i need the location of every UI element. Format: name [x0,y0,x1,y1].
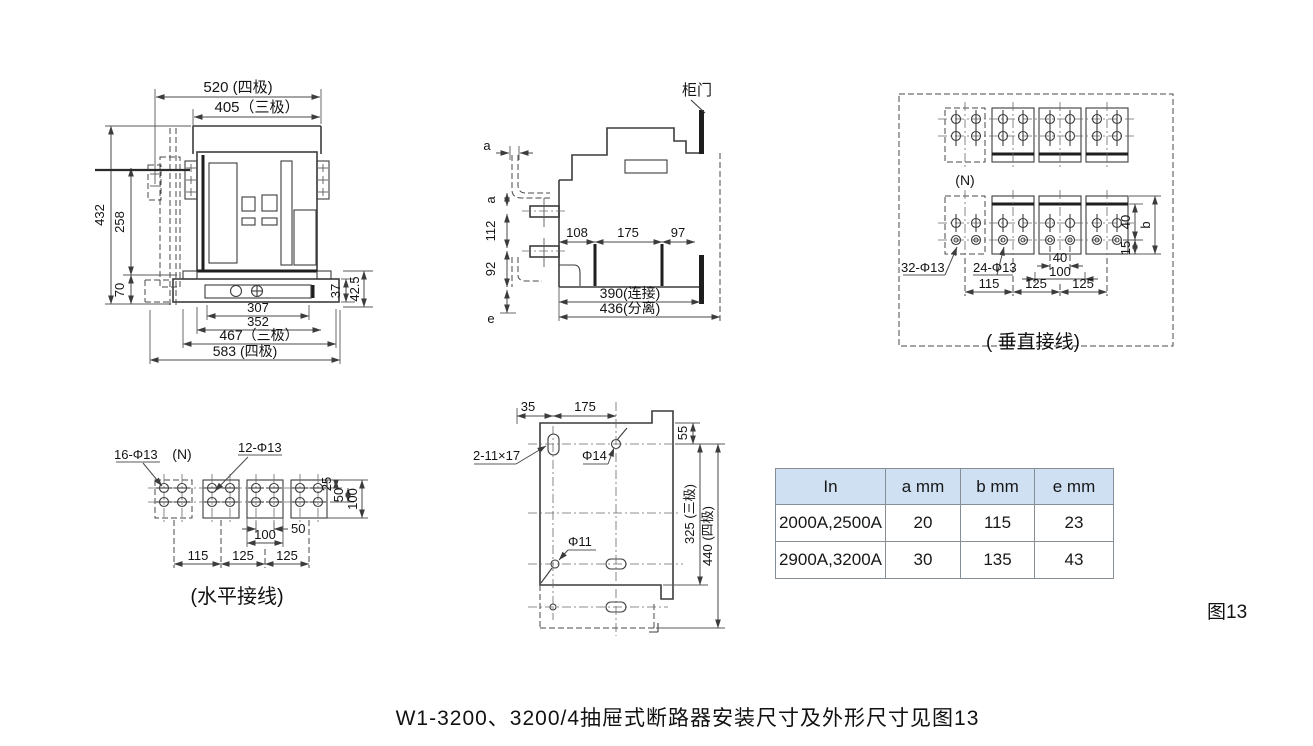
dim-125b-label: 125 [1072,276,1094,291]
dim-70-label: 70 [112,283,127,297]
cell-in-1: 2000A,2500A [776,505,886,542]
holes-12-label: 12-Φ13 [238,440,282,455]
horizontal-wiring-caption: (水平接线) [177,580,297,609]
dim-436-label: 436(分离) [600,300,661,316]
col-header-b: b mm [961,469,1035,505]
front-view-withdrawn-position [95,128,190,307]
dim-125a-label: 125 [1025,276,1047,291]
cabinet-door-label: 柜门 [682,82,712,99]
cabinet-door-panel-lower [699,255,704,304]
dim-405-label: 405（三极） [214,99,299,116]
neutral-pole-label: (N) [172,446,191,462]
front-view-body [173,126,339,302]
spec-table-row-2: 2900A,3200A 30 135 43 [776,542,1114,579]
vertical-terminals-bottom-row [938,190,1135,260]
mounting-plate-features [528,402,683,636]
spec-table: In a mm b mm e mm 2000A,2500A 20 115 23 … [775,468,1114,579]
dim-325-label: 325 (三极) [682,484,697,544]
dim-50-pitch-label: 50 [291,521,305,536]
vertical-wiring-caption: ( 垂直接线) [963,327,1103,354]
side-view-drawing: 柜门 a a 112 92 e 108 175 97 390(连接) 436(分… [462,80,754,352]
dim-100-label: 100 [1049,264,1071,279]
dim-15-label: 15 [1118,241,1133,255]
dim-108-label: 108 [566,225,588,240]
dim-583-label: 583 (四极) [213,343,278,359]
dim-55-label: 55 [675,426,690,440]
figure-caption: W1-3200、3200/4抽屉式断路器安装尺寸及外形尺寸见图13 [31,702,1313,732]
cell-e-2: 43 [1035,542,1114,579]
cabinet-door-panel-upper [699,110,704,154]
dim-467-label: 467（三极） [219,327,298,343]
dim-a-side-label: a [483,196,498,204]
rail-cross-marks [186,164,328,196]
col-header-in: In [776,469,886,505]
nameplate [625,160,667,173]
dim-125a-label: 125 [232,548,254,563]
dim-35-label: 35 [521,399,535,414]
dim-92-label: 92 [483,262,498,276]
dim-40-pitch-label: 40 [1053,250,1067,265]
front-view-drawing: 520 (四极) 405（三极） 432 258 70 37 42.5 307 … [93,64,387,404]
dim-175-label: 175 [617,225,639,240]
vertical-terminals-top-row [938,102,1135,168]
figure-number-label: 图13 [1207,597,1247,624]
spec-table-header-row: In a mm b mm e mm [776,469,1114,505]
dim-115-label: 115 [979,276,1000,291]
dim-37-label: 37 [328,284,343,298]
dim-97-label: 97 [671,225,685,240]
col-header-a: a mm [886,469,961,505]
dim-50-side-label: 50 [331,488,346,502]
lower-terminal [530,246,559,257]
dim-258-label: 258 [112,211,127,233]
cell-b-1: 115 [961,505,1035,542]
holes-16-label: 16-Φ13 [114,447,158,462]
horizontal-wiring-drawing: 16-Φ13 (N) 12-Φ13 25 50 100 50 100 115 1… [98,432,390,592]
vertical-wiring-drawing: (N) 32-Φ13 24-Φ13 40 100 115 125 125 40 … [893,88,1181,356]
dim-125b-label: 125 [276,548,298,563]
dim-307-label: 307 [247,300,269,315]
mounting-slot [548,434,559,455]
catalog-page: 520 (四极) 405（三极） 432 258 70 37 42.5 307 … [0,0,1313,746]
dim-112-label: 112 [483,221,498,242]
holes-32-label: 32-Φ13 [901,260,945,275]
holes-24-label: 24-Φ13 [973,260,1017,275]
col-header-e: e mm [1035,469,1114,505]
dim-440-label: 440 (四极) [700,506,715,566]
mounting-plate-drawing: 35 175 2-11×17 Φ14 Φ11 55 325 (三极) 440 (… [468,388,740,660]
front-view-dim-lines [105,89,373,364]
dim-100-side-label: 100 [345,488,360,510]
handle-hole [231,286,242,297]
dim-e-label: e [487,311,494,326]
cell-a-2: 30 [886,542,961,579]
hole-11-label: Φ11 [568,534,592,549]
dim-432-label: 432 [92,204,107,226]
dim-520-label: 520 (四极) [203,79,272,96]
dim-390-label: 390(连接) [600,285,661,301]
dim-100-pitch-label: 100 [254,527,276,542]
neutral-pole-label: (N) [955,172,974,188]
slot-label: 2-11×17 [473,448,520,463]
cell-in-2: 2900A,3200A [776,542,886,579]
dim-175-label: 175 [574,399,596,414]
dim-42-5-label: 42.5 [347,276,362,301]
hole-14-label: Φ14 [582,448,607,463]
cell-b-2: 135 [961,542,1035,579]
cell-e-1: 23 [1035,505,1114,542]
dim-115-label: 115 [188,548,209,563]
dim-40-side-label: 40 [1118,215,1133,229]
horizontal-terminals [148,474,338,524]
dim-a-top-label: a [483,138,491,153]
upper-terminal [530,206,559,217]
spec-table-row-1: 2000A,2500A 20 115 23 [776,505,1114,542]
cell-a-1: 20 [886,505,961,542]
dim-b-label: b [1138,221,1153,228]
